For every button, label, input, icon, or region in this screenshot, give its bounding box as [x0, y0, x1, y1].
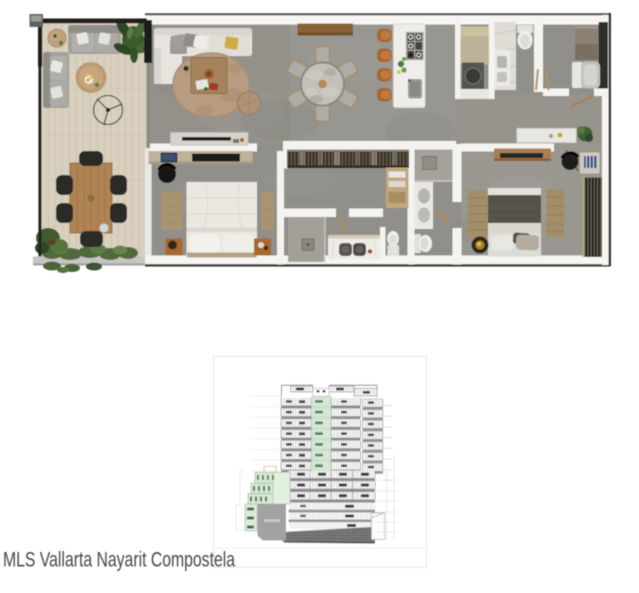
svg-text:MLS Vallarta Nayarit Compostel: MLS Vallarta Nayarit Compostela — [3, 549, 235, 572]
